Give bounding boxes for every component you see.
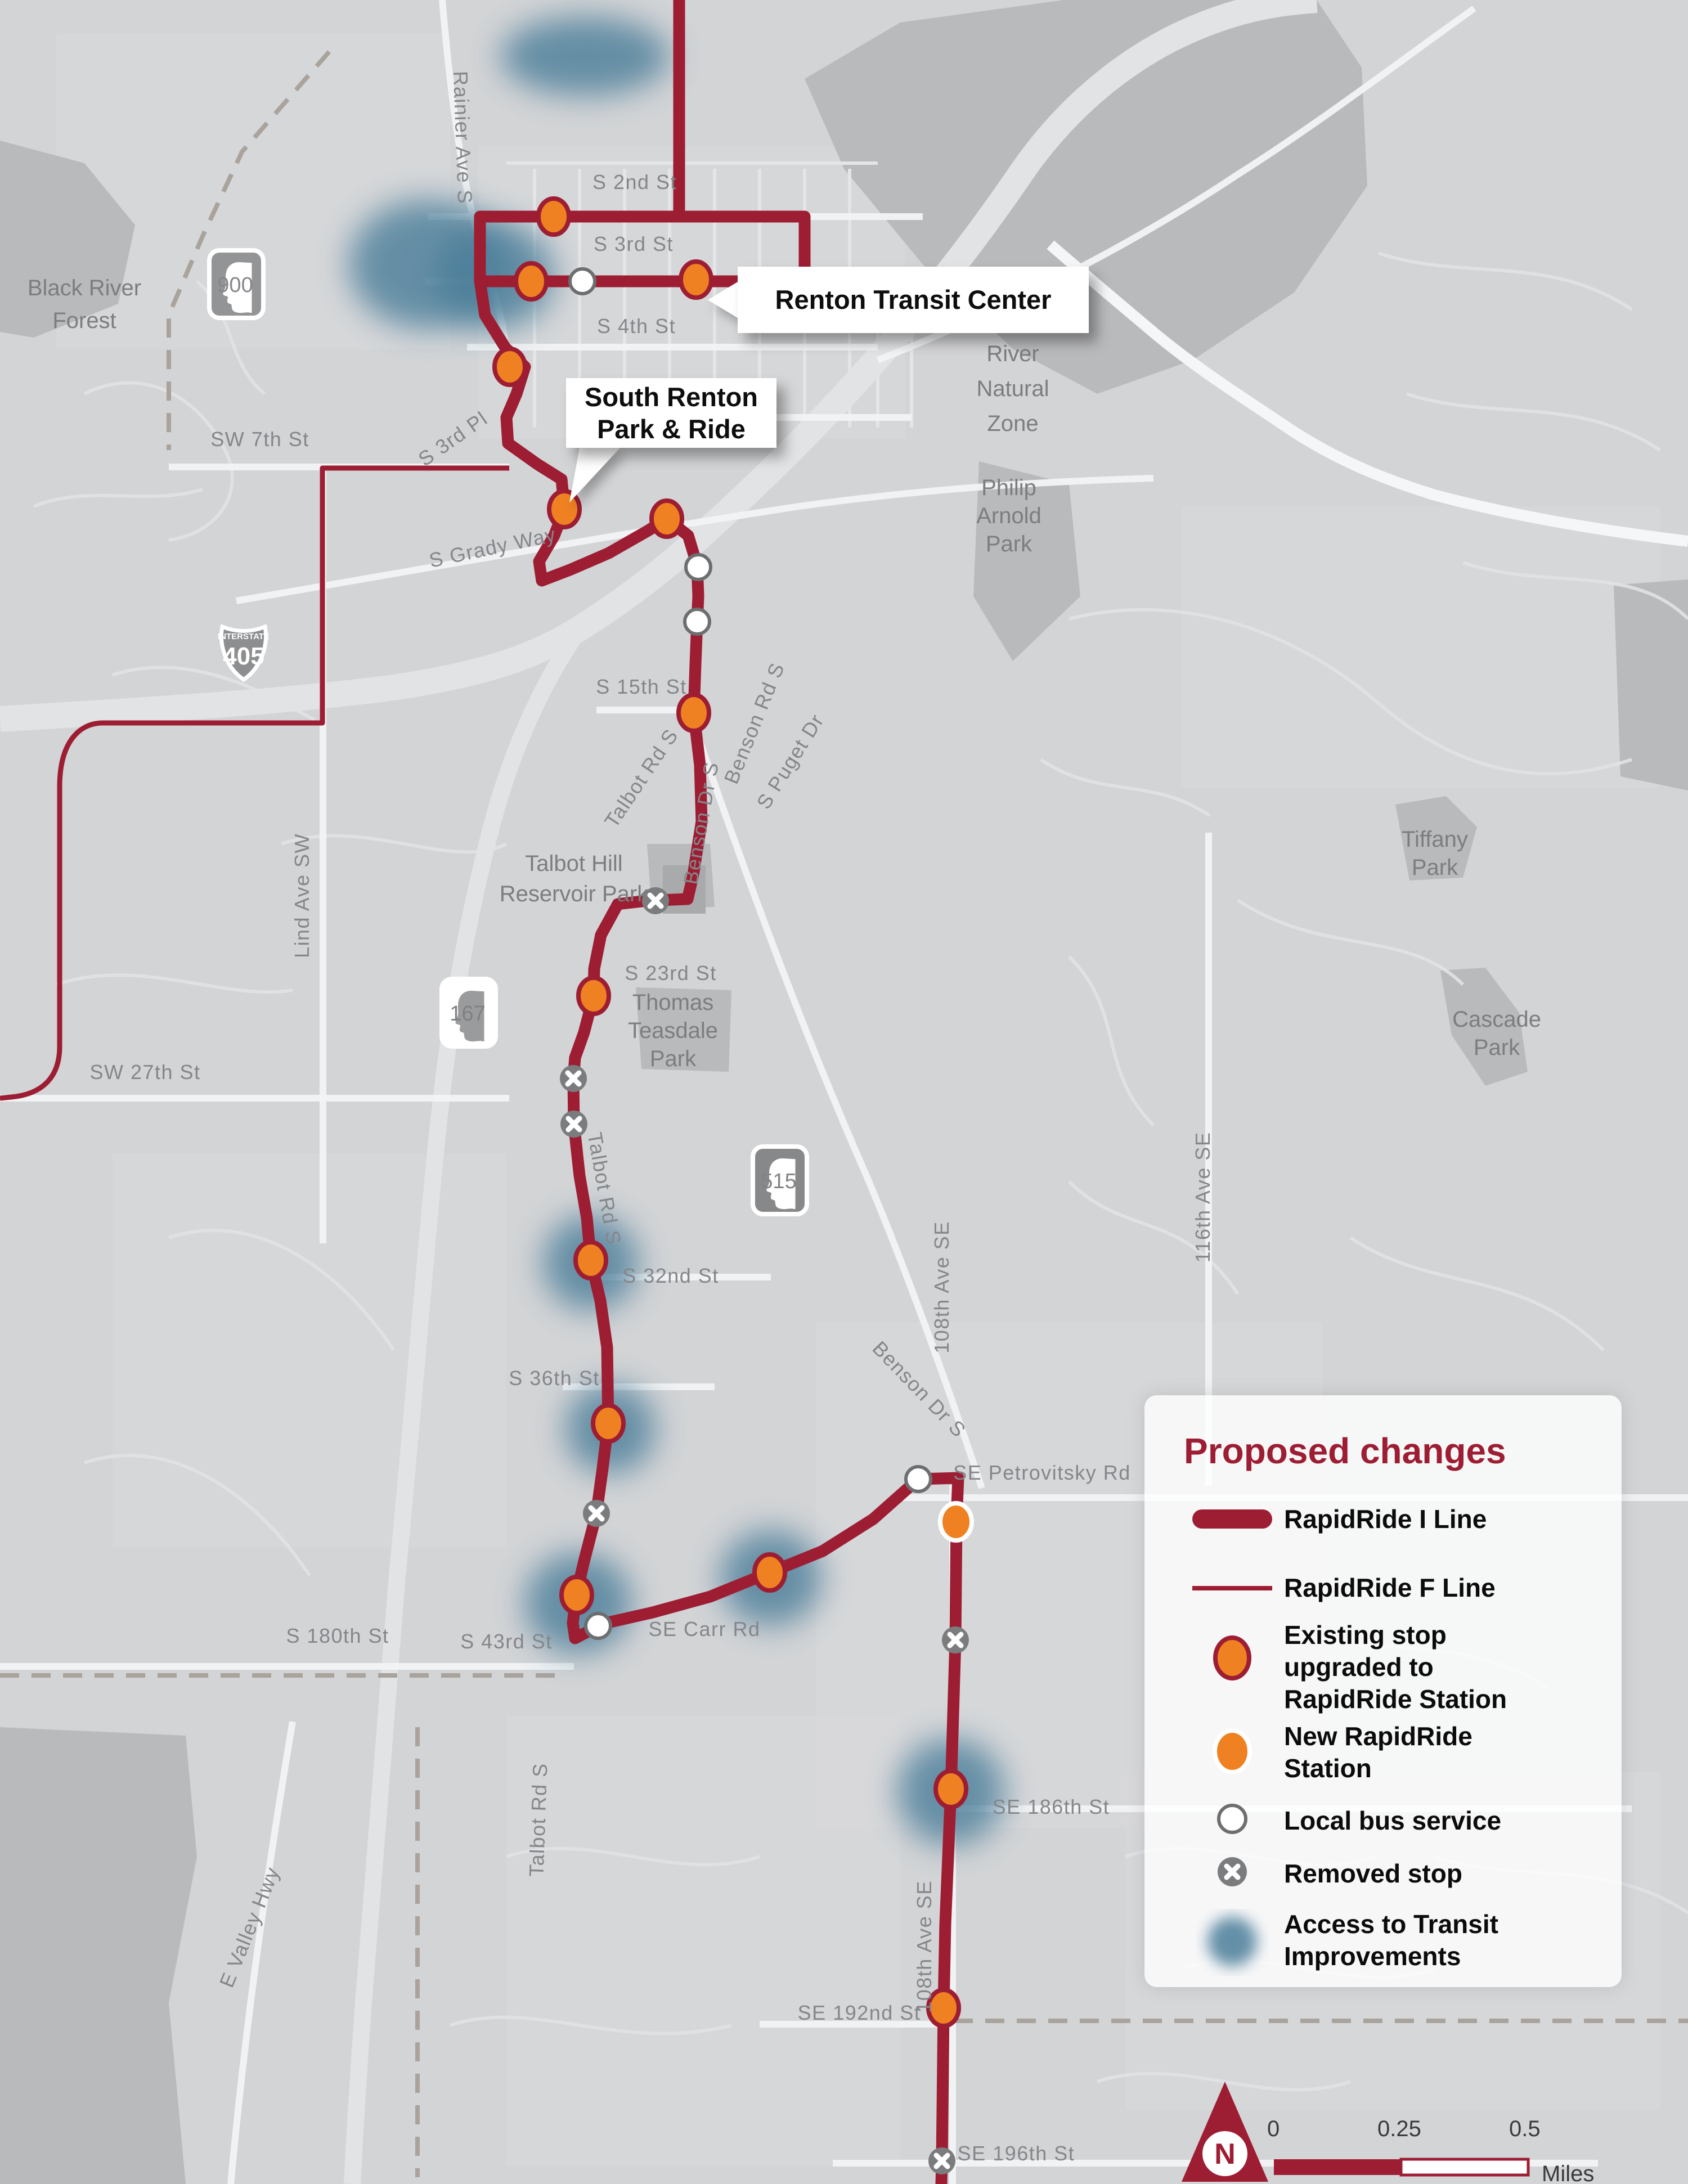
- stop-s-3rd-st-local[interactable]: [570, 269, 595, 294]
- shield-900-number: 900: [217, 273, 253, 297]
- street-label-116th-ave-se: 116th Ave SE: [1191, 1132, 1214, 1263]
- street-label-s-4th-st: S 4th St: [597, 314, 676, 338]
- legend-removed-label: Removed stop: [1284, 1858, 1462, 1890]
- street-label-se-196th-st: SE 196th St: [958, 2142, 1075, 2165]
- street-label-sw-7th-st: SW 7th St: [210, 428, 309, 451]
- city-block-4: [113, 1153, 506, 1547]
- park-label-thomas: Thomas: [632, 990, 714, 1015]
- f-line-swatch: [1187, 1574, 1277, 1602]
- stop-s-23rd-st[interactable]: [578, 978, 609, 1014]
- callout-rtc-text: Renton Transit Center: [775, 284, 1052, 316]
- shield-405-small-label: INTERSTATE: [218, 632, 270, 641]
- street-label-s-36th-st: S 36th St: [509, 1367, 600, 1390]
- local-bus-icon: [1187, 1800, 1277, 1837]
- stop-benson-local-1[interactable]: [686, 555, 711, 579]
- street-label-se-192nd-st: SE 192nd St: [798, 2001, 921, 2024]
- street-label-talbot-rd-s: Talbot Rd S: [524, 1763, 551, 1877]
- park-label-park: Park: [986, 532, 1032, 556]
- stop-new-108th-ave[interactable]: [940, 1503, 972, 1540]
- removed-stop-icon: [1187, 1853, 1277, 1890]
- legend-existing-label: Existing stop upgraded to RapidRide Stat…: [1284, 1619, 1507, 1715]
- street-label-s-32nd-st: S 32nd St: [622, 1264, 719, 1287]
- legend-access-label: Access to Transit Improvements: [1284, 1908, 1498, 1972]
- legend-new-label: New RapidRide Station: [1284, 1720, 1472, 1785]
- stop-se-186th-st[interactable]: [936, 1771, 966, 1807]
- city-block-3: [1182, 506, 1660, 788]
- street-label-rainier-ave-s: Rainier Ave S: [449, 70, 477, 204]
- park-label-black-river: Black River: [28, 276, 141, 300]
- stop-s-3rd-pl[interactable]: [495, 349, 525, 385]
- park-label-cascade: Cascade: [1452, 1007, 1541, 1032]
- callout-renton-transit-center: Renton Transit Center: [738, 267, 1089, 333]
- street-label-108th-ave-se: 108th Ave SE: [913, 1880, 936, 2013]
- scale-unit-label: Miles: [1542, 2161, 1594, 2184]
- access-blob-icon: [1187, 1912, 1277, 1974]
- street-label-s-3rd-st: S 3rd St: [594, 232, 674, 255]
- stop-benson-local-2[interactable]: [685, 609, 710, 634]
- callout-south-renton-park-ride: South Renton Park & Ride: [566, 378, 776, 448]
- scalebar-filled-segment: [1274, 2159, 1401, 2175]
- stop-south-renton-park-and-ride[interactable]: [549, 491, 580, 527]
- street-label-s-43rd-st: S 43rd St: [460, 1630, 553, 1653]
- park-label-arnold: Arnold: [976, 504, 1041, 528]
- shield-900: 900: [209, 250, 263, 318]
- i-line-swatch: [1187, 1502, 1277, 1536]
- park-label-forest: Forest: [52, 308, 116, 333]
- shield-405-number: 405: [223, 642, 264, 670]
- access-improvement-blob-0: [501, 17, 670, 96]
- existing-stop-icon: [1187, 1633, 1277, 1683]
- shield-515: 515: [753, 1147, 807, 1214]
- park-label-talbot-hill: Talbot Hill: [525, 851, 622, 876]
- scalebar-outline-segment: [1401, 2159, 1528, 2175]
- park-label-tiffany: Tiffany: [1402, 827, 1468, 852]
- street-label-108th-ave-se: 108th Ave SE: [930, 1221, 953, 1354]
- transit-map-page: 900INTERSTATE405167515Rainier Ave SS 2nd…: [0, 0, 1688, 2184]
- street-label-s-15th-st: S 15th St: [596, 675, 687, 698]
- stop-s-36th-st[interactable]: [593, 1405, 623, 1441]
- street-label-se-petrovitsky-rd: SE Petrovitsky Rd: [953, 1461, 1131, 1484]
- legend-i-line-label: RapidRide I Line: [1284, 1503, 1487, 1535]
- scale-tick-0: 0: [1267, 2116, 1280, 2142]
- park-label-park: Park: [650, 1046, 697, 1071]
- legend-local-label: Local bus service: [1284, 1805, 1501, 1837]
- park-label-natural: Natural: [977, 376, 1049, 401]
- shield-167: 167: [442, 979, 496, 1046]
- street-label-sw-27th-st: SW 27th St: [89, 1060, 200, 1084]
- park-label-reservoir-park: Reservoir Park: [500, 882, 649, 906]
- scale-tick-05: 0.5: [1509, 2116, 1541, 2142]
- city-block-5: [506, 1716, 900, 2166]
- street-label-lind-ave-sw: Lind Ave SW: [290, 833, 313, 958]
- shield-167-number: 167: [450, 1002, 485, 1026]
- park-label-zone: Zone: [987, 411, 1038, 436]
- zone-bottom-left-area: [0, 1727, 197, 2184]
- park-label-river: River: [986, 341, 1039, 366]
- stop-s-43rd-local[interactable]: [586, 1614, 610, 1638]
- legend-panel: Proposed changes RapidRide I Line RapidR…: [1144, 1395, 1622, 1987]
- street-label-se-186th-st: SE 186th St: [993, 1795, 1110, 1818]
- park-label-philip: Philip: [981, 475, 1036, 500]
- north-arrow-label: N: [1214, 2138, 1236, 2170]
- stop-s-15th-st[interactable]: [679, 695, 709, 731]
- stop-s-32nd-st[interactable]: [576, 1242, 606, 1278]
- legend-title: Proposed changes: [1184, 1430, 1506, 1472]
- shield-515-number: 515: [761, 1170, 796, 1193]
- stop-se-petrovitsky-local[interactable]: [906, 1467, 931, 1491]
- street-label-s-23rd-st: S 23rd St: [625, 961, 717, 985]
- stop-se-carr-rd[interactable]: [755, 1554, 785, 1590]
- stop-s-43rd-st[interactable]: [562, 1577, 592, 1613]
- callout-srpr-line1: South Renton: [585, 381, 758, 413]
- park-label-teasdale: Teasdale: [628, 1018, 718, 1043]
- callout-srpr-line2: Park & Ride: [597, 413, 746, 445]
- new-station-icon: [1187, 1726, 1277, 1777]
- stop-renton-transit-center[interactable]: [681, 262, 711, 298]
- park-label-park: Park: [1412, 855, 1458, 880]
- legend-f-line-label: RapidRide F Line: [1284, 1572, 1496, 1604]
- park-label-park: Park: [1474, 1035, 1520, 1060]
- street-label-s-2nd-st: S 2nd St: [592, 170, 677, 194]
- scale-tick-025: 0.25: [1377, 2116, 1421, 2142]
- stop-s-3rd-st[interactable]: [516, 263, 546, 299]
- street-label-s-180th-st: S 180th St: [286, 1624, 389, 1647]
- stop-s-2nd-st[interactable]: [538, 199, 569, 235]
- stop-grady-way[interactable]: [652, 501, 682, 537]
- street-label-se-carr-rd: SE Carr Rd: [648, 1617, 760, 1641]
